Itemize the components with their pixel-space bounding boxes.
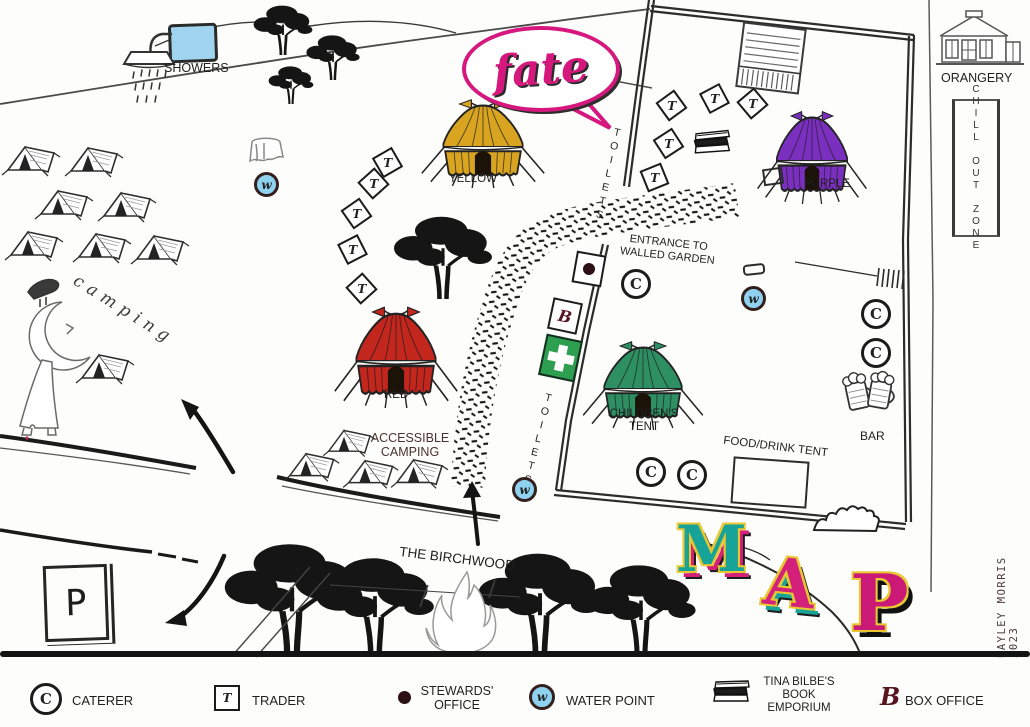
legend-label-box-office: BOX OFFICE — [905, 693, 984, 708]
purple-tent — [758, 112, 867, 204]
small-sign-rect — [742, 263, 765, 276]
legend-label-book-emporium: TINA BILBE'S BOOK EMPORIUM — [750, 676, 848, 716]
parking-marker: P — [43, 564, 110, 642]
caterer-marker: C — [861, 299, 891, 329]
legend-label-caterer: CATERER — [72, 693, 133, 708]
label-childrens-tent: CHILDREN'S TENT — [604, 408, 684, 434]
label-accessible-camping: ACCESSIBLE CAMPING — [366, 431, 454, 460]
legend-label-trader: TRADER — [252, 693, 305, 708]
caterer-marker: C — [677, 460, 707, 490]
small-stall-square — [762, 167, 784, 187]
chill-out-zone: CHILL OUT ZONE — [952, 99, 1000, 237]
map-title-letter-p: P — [850, 565, 909, 643]
festival-map: fate SHOWERS YELLOW RED PURPLE CHILDREN'… — [0, 0, 1030, 727]
fate-logo: fate — [462, 26, 620, 112]
stewards-dot-icon — [582, 262, 596, 276]
map-title-letter-a: A — [761, 548, 819, 619]
label-purple-tent: PURPLE — [804, 178, 850, 190]
parking-letter: P — [64, 582, 87, 624]
credit-text: BAYLEY MORRIS 2023 — [996, 518, 1020, 658]
caterer-legend-icon: C — [30, 683, 62, 715]
label-showers: SHOWERS — [164, 61, 229, 75]
trader-legend-icon: T — [214, 685, 240, 711]
beer-mugs-icon — [841, 370, 897, 411]
legend-label-water: WATER POINT — [566, 693, 655, 708]
stewards-office-marker — [571, 251, 606, 288]
tree-stump — [250, 138, 283, 161]
hedge-bush — [814, 506, 879, 531]
water-legend-icon: w — [529, 684, 555, 710]
camping-tents — [2, 147, 189, 384]
label-red-tent: RED — [384, 389, 408, 401]
food-drink-tent-outline — [730, 456, 809, 508]
legend-label-stewards: STEWARDS' OFFICE — [415, 684, 499, 713]
label-orangery: ORANGERY — [941, 71, 1012, 85]
caterer-marker: C — [636, 457, 666, 487]
stewards-legend-icon — [398, 691, 411, 704]
box-office-legend-icon: B — [880, 682, 900, 711]
water-point-marker: w — [512, 477, 537, 502]
label-chill-out-zone: CHILL OUT ZONE — [971, 84, 982, 252]
garden-building — [736, 22, 805, 93]
water-point-marker: w — [254, 172, 279, 197]
label-yellow-tent: YELLOW — [449, 173, 497, 185]
fate-logo-text: fate — [491, 40, 590, 98]
label-bar: BAR — [860, 429, 885, 443]
caterer-marker: C — [861, 338, 891, 368]
caterer-marker: C — [621, 269, 651, 299]
moon-wizard-illustration — [20, 280, 90, 440]
books-legend-icon — [712, 680, 752, 704]
map-title-letter-m: M — [676, 518, 747, 582]
legend-divider — [0, 651, 1030, 657]
book-emporium-icon — [694, 130, 730, 152]
water-point-marker: w — [741, 286, 766, 311]
orangery-building — [936, 11, 1024, 64]
